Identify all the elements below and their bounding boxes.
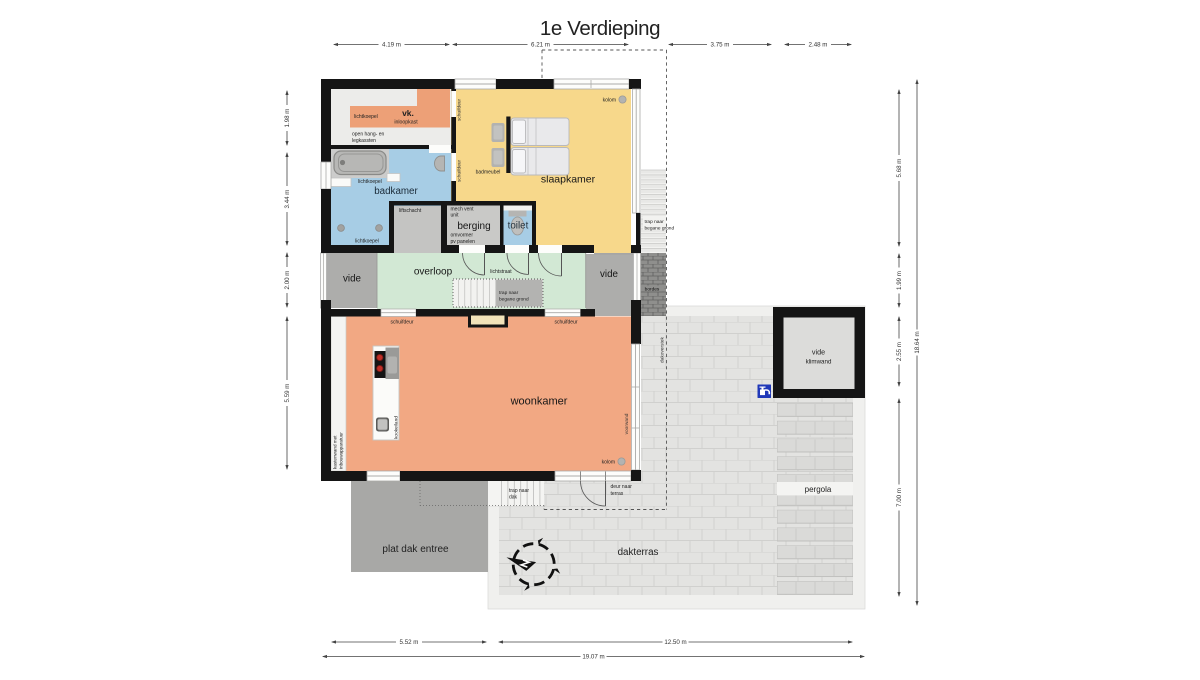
svg-text:toilet: toilet <box>508 221 529 232</box>
svg-text:voorwand: voorwand <box>624 413 630 434</box>
svg-text:trap naar: trap naar <box>499 290 519 296</box>
svg-text:lichtstraat: lichtstraat <box>490 269 512 275</box>
svg-text:begane grond: begane grond <box>645 226 675 232</box>
svg-text:kastenwand met: kastenwand met <box>333 435 338 469</box>
svg-text:kolom: kolom <box>603 98 616 104</box>
svg-text:trap naar: trap naar <box>645 219 665 225</box>
svg-text:woonkamer: woonkamer <box>510 396 568 408</box>
svg-text:badkamer: badkamer <box>374 186 418 197</box>
svg-text:lichtkoepel: lichtkoepel <box>354 114 378 120</box>
svg-text:trap naar: trap naar <box>509 488 529 494</box>
svg-text:schuifdeur: schuifdeur <box>457 98 463 121</box>
svg-text:dak: dak <box>509 495 518 501</box>
svg-text:5.52 m: 5.52 m <box>400 639 419 646</box>
svg-text:kookeiland: kookeiland <box>394 416 400 439</box>
svg-text:vide: vide <box>343 274 362 285</box>
svg-text:pergola: pergola <box>805 485 832 494</box>
svg-text:terras: terras <box>611 491 624 497</box>
svg-text:inloopkast: inloopkast <box>394 120 418 126</box>
svg-text:2.55 m: 2.55 m <box>896 342 903 361</box>
svg-text:unit: unit <box>451 213 460 219</box>
svg-text:1e Verdieping: 1e Verdieping <box>540 17 660 40</box>
svg-text:pv panelen: pv panelen <box>451 239 476 245</box>
svg-text:18.64 m: 18.64 m <box>914 331 921 353</box>
svg-text:2.48 m: 2.48 m <box>809 42 828 49</box>
svg-text:3.75 m: 3.75 m <box>711 42 730 49</box>
svg-text:lichtkoepel: lichtkoepel <box>358 179 382 185</box>
svg-text:vk.: vk. <box>402 108 414 118</box>
svg-text:5.59 m: 5.59 m <box>284 384 291 403</box>
svg-text:3.44 m: 3.44 m <box>284 190 291 209</box>
svg-text:begane grond: begane grond <box>499 297 529 303</box>
svg-text:omvormer: omvormer <box>451 233 474 239</box>
svg-text:2.00 m: 2.00 m <box>284 271 291 290</box>
svg-text:liftschacht: liftschacht <box>399 208 422 214</box>
svg-text:kolom: kolom <box>602 460 615 466</box>
svg-text:deur naar: deur naar <box>611 484 633 490</box>
svg-text:12.50 m: 12.50 m <box>664 639 686 646</box>
svg-text:vide: vide <box>812 348 825 357</box>
svg-text:1.98 m: 1.98 m <box>284 109 291 128</box>
svg-text:plat dak entree: plat dak entree <box>382 544 449 555</box>
svg-text:lichtkoepel: lichtkoepel <box>355 239 379 245</box>
svg-text:badmeubel: badmeubel <box>476 170 501 176</box>
svg-text:legkassten: legkassten <box>352 138 376 144</box>
svg-text:klimwand: klimwand <box>806 359 832 366</box>
svg-text:4.19 m: 4.19 m <box>382 42 401 49</box>
svg-text:open hang- en: open hang- en <box>352 132 384 138</box>
svg-text:schuifdeur: schuifdeur <box>554 320 577 326</box>
svg-text:schuifdeur: schuifdeur <box>390 320 413 326</box>
svg-text:1.99 m: 1.99 m <box>896 271 903 290</box>
svg-text:overloop: overloop <box>414 267 453 278</box>
svg-text:vide: vide <box>600 269 619 280</box>
svg-text:6.21 m: 6.21 m <box>531 42 550 49</box>
svg-text:berging: berging <box>457 221 490 232</box>
svg-text:inbouwapparatuur: inbouwapparatuur <box>339 432 344 469</box>
svg-text:bordes: bordes <box>645 287 660 293</box>
svg-text:19.07 m: 19.07 m <box>582 654 604 661</box>
svg-text:5.68 m: 5.68 m <box>896 159 903 178</box>
svg-text:schuifdeur: schuifdeur <box>457 159 463 182</box>
svg-text:dakterras: dakterras <box>618 547 659 558</box>
svg-text:7.00 m: 7.00 m <box>896 488 903 507</box>
svg-text:dakoverstek: dakoverstek <box>660 336 666 362</box>
